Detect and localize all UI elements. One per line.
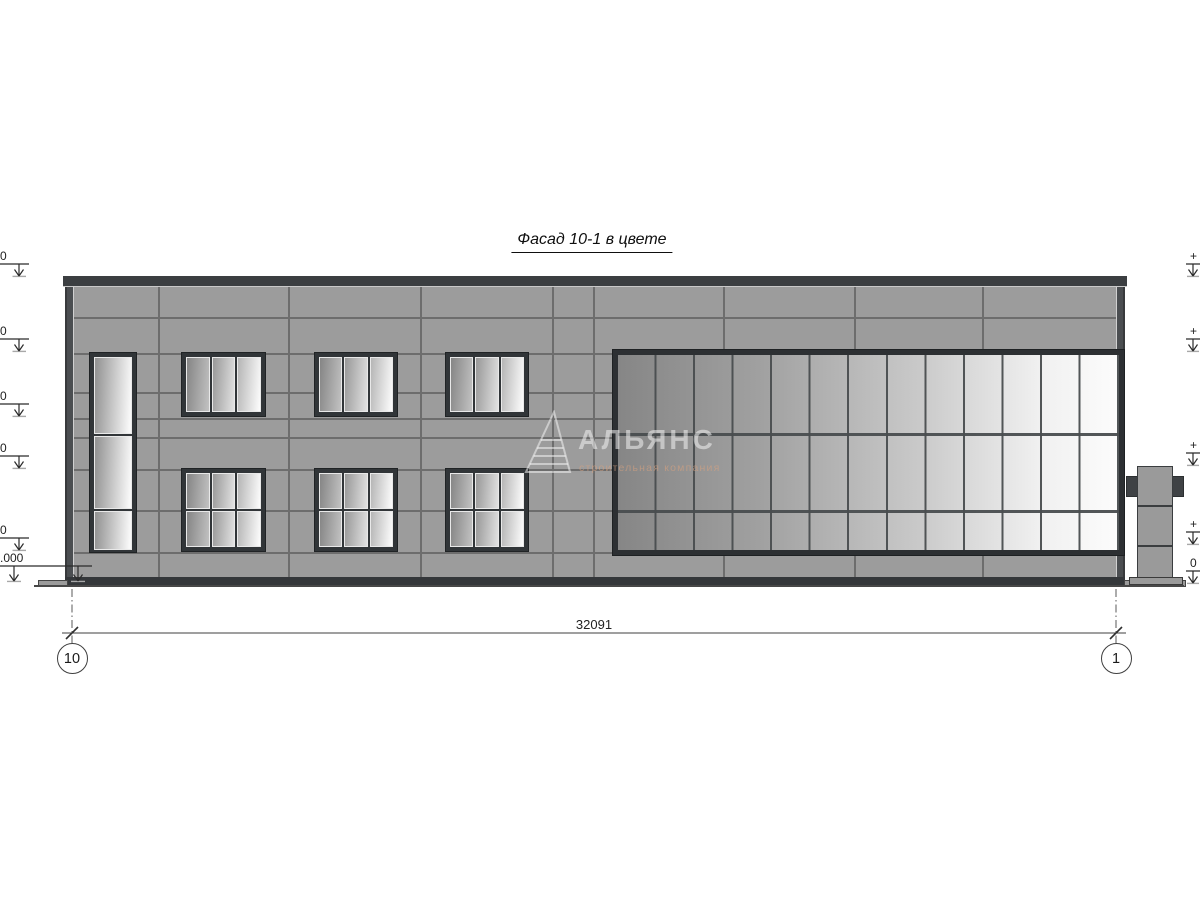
- elevation-marker-right: +: [1186, 326, 1200, 352]
- window-pane: [370, 511, 393, 547]
- window-pane: [370, 473, 393, 509]
- window-pane: [475, 473, 498, 509]
- dimension-lines: [0, 586, 1200, 678]
- panel-seam-vertical: [420, 287, 422, 577]
- window-pane: [212, 511, 236, 547]
- elevation-marker-left: 0: [0, 326, 30, 352]
- window-pane: [450, 357, 473, 412]
- elevation-marker-right: +: [1186, 251, 1200, 277]
- grid-axis-label: 10: [64, 651, 80, 667]
- elevation-marker-right: +: [1186, 440, 1200, 466]
- panel-seam-vertical: [158, 287, 160, 577]
- facade-drawing-canvas: Фасад 10-1 в цвете: [0, 0, 1200, 900]
- window-pane: [237, 511, 261, 547]
- block-joint: [1138, 545, 1172, 547]
- window-pane: [94, 511, 132, 550]
- protruding-block: [1137, 466, 1173, 582]
- elevation-marker-left: 0: [0, 251, 30, 277]
- glazing-vertical-mullions: [618, 355, 1119, 550]
- parapet-coping: [63, 276, 1127, 287]
- window-pane: [450, 473, 473, 509]
- grid-axis-label: 1: [1112, 651, 1120, 667]
- elevation-marker-left: 0: [0, 443, 30, 469]
- panel-seam-vertical: [288, 287, 290, 577]
- window-pane: [344, 473, 367, 509]
- window-pane: [237, 473, 261, 509]
- window-pane: [475, 511, 498, 547]
- window-pane: [501, 357, 524, 412]
- window-upper-1: [181, 352, 266, 417]
- panel-seam-horizontal: [74, 437, 612, 439]
- block-base: [1129, 577, 1183, 585]
- drawing-title: Фасад 10-1 в цвете: [511, 231, 672, 253]
- panel-seam-vertical: [723, 287, 725, 352]
- glazing-horizontal-mullion: [618, 433, 1119, 436]
- window-pane: [450, 511, 473, 547]
- window-lower-1: [181, 468, 266, 552]
- panel-seam-vertical: [723, 556, 725, 577]
- grid-axis-bubble-10: 10: [57, 643, 88, 674]
- grid-axis-bubble-1: 1: [1101, 643, 1132, 674]
- panel-seam-vertical: [593, 287, 595, 577]
- window-pane: [237, 357, 261, 412]
- window-upper-2: [314, 352, 398, 417]
- panel-seam-horizontal: [74, 317, 1116, 319]
- glazing-horizontal-mullion: [618, 510, 1119, 513]
- window-tall-stair: [89, 352, 137, 553]
- elevation-marker-left: 0: [0, 391, 30, 417]
- curtain-wall-glass: [618, 355, 1119, 550]
- window-pane: [212, 357, 236, 412]
- block-flange-right: [1172, 476, 1184, 497]
- panel-seam-vertical: [982, 556, 984, 577]
- building-corner-left: [65, 277, 74, 586]
- window-pane: [319, 473, 342, 509]
- panel-seam-horizontal: [74, 418, 612, 420]
- elevation-marker-ground-left: .000: [0, 553, 94, 587]
- window-pane: [344, 357, 367, 412]
- panel-seam-vertical: [854, 556, 856, 577]
- window-lower-2: [314, 468, 398, 552]
- window-pane: [186, 357, 210, 412]
- window-pane: [319, 357, 342, 412]
- window-pane: [475, 357, 498, 412]
- window-pane: [319, 511, 342, 547]
- elevation-marker-left: 0: [0, 525, 30, 551]
- elevation-marker-right: 0: [1186, 558, 1200, 584]
- window-pane: [344, 511, 367, 547]
- dimension-value: 32091: [576, 617, 612, 632]
- window-pane: [370, 357, 393, 412]
- elevation-marker-right: +: [1186, 519, 1200, 545]
- window-pane: [212, 473, 236, 509]
- panel-seam-vertical: [552, 287, 554, 577]
- block-joint: [1138, 505, 1172, 507]
- window-pane: [94, 357, 132, 434]
- window-upper-3: [445, 352, 529, 417]
- panel-seam-vertical: [982, 287, 984, 352]
- window-pane: [501, 511, 524, 547]
- window-pane: [94, 436, 132, 509]
- window-pane: [186, 511, 210, 547]
- window-pane: [186, 473, 210, 509]
- panel-seam-vertical: [854, 287, 856, 352]
- window-pane: [501, 473, 524, 509]
- window-lower-3: [445, 468, 529, 552]
- panel-seam-horizontal: [74, 552, 612, 554]
